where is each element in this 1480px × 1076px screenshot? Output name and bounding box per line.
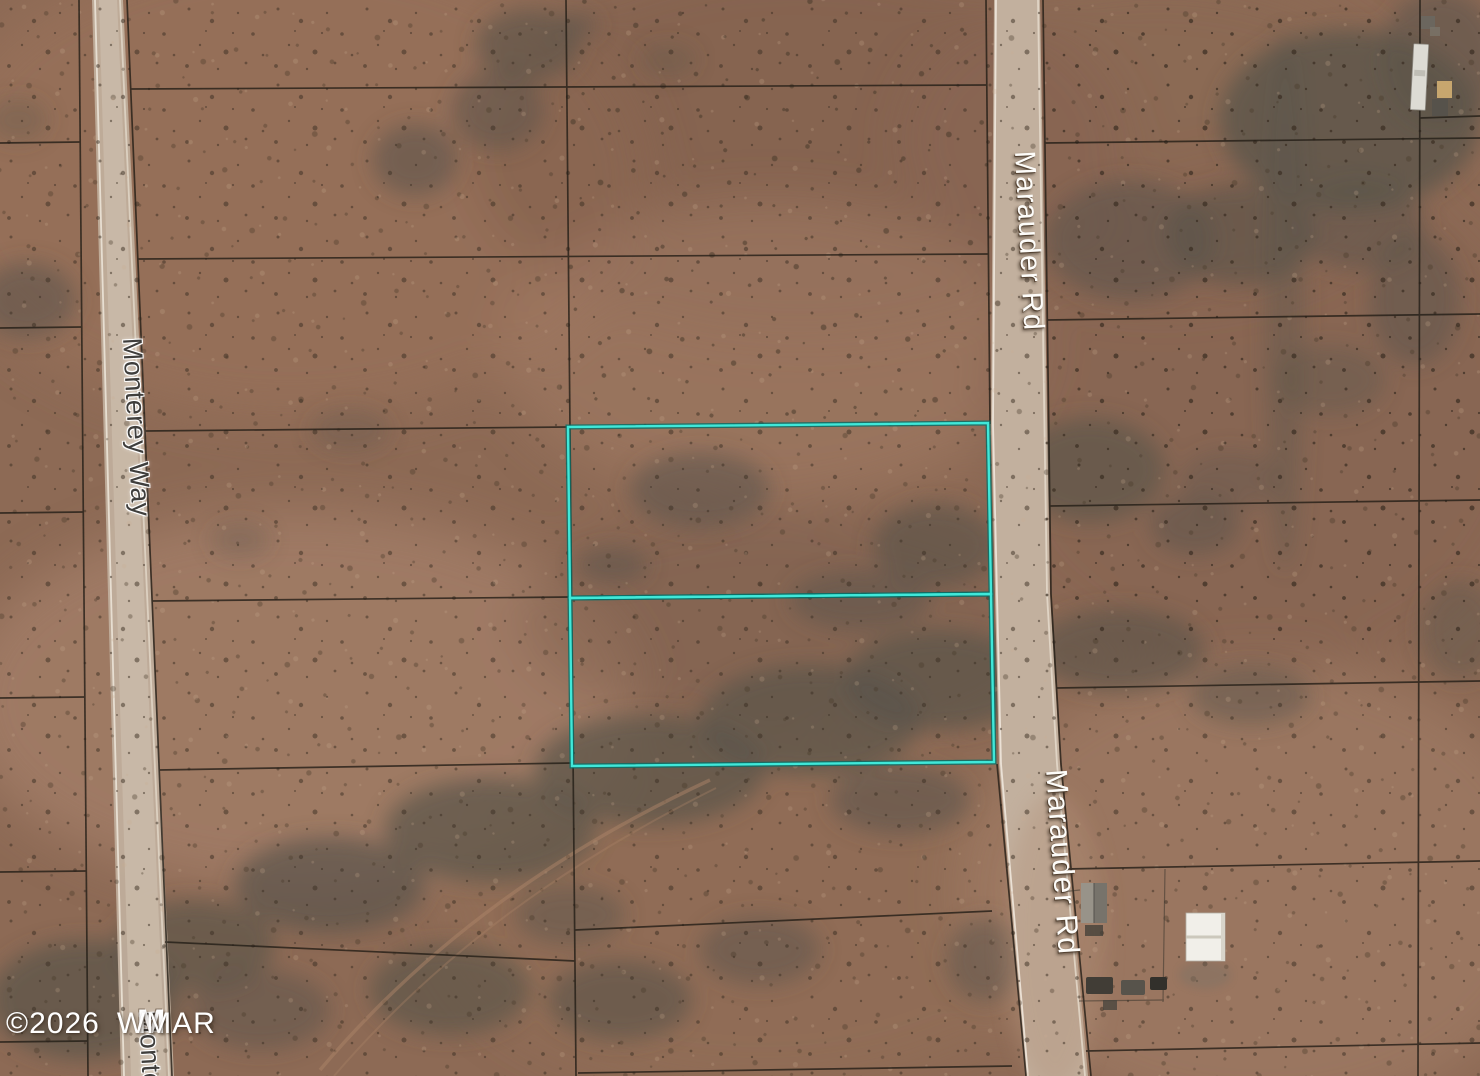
satellite-map: Marauder Rd Marauder Rd Monterey Way Mon… <box>0 0 1480 1076</box>
terrain-imagery <box>0 0 1480 1076</box>
terrain-speckles <box>0 0 1480 1076</box>
